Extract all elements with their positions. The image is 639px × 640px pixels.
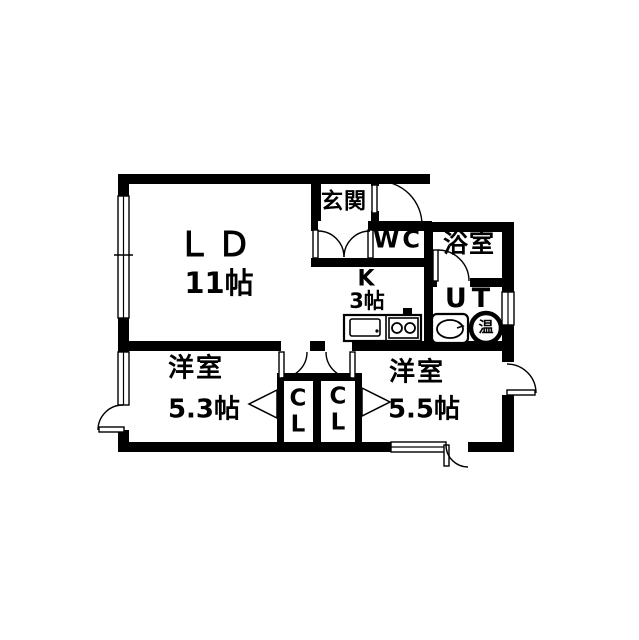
- room-label-genkan: 玄関: [321, 190, 367, 213]
- room-label-wc: WC: [373, 227, 423, 252]
- room-size-ld: 11帖: [184, 268, 253, 298]
- wall-right: [502, 222, 514, 452]
- wall-top: [118, 174, 430, 184]
- room-size-bedroom-left: 5.3帖: [168, 396, 240, 423]
- sink-icon: [350, 319, 380, 336]
- room-label-closet-left: C L: [290, 386, 307, 439]
- wall-closet-left: [277, 373, 284, 442]
- wall-mid-left: [118, 341, 281, 351]
- room-label-kitchen: K: [357, 267, 374, 290]
- room-label-bedroom-left: 洋室: [168, 355, 224, 382]
- room-size-kitchen: 3帖: [349, 290, 385, 312]
- floorplan-drawing: [0, 0, 639, 640]
- entrance-door: [372, 181, 422, 225]
- opening-bedroom1-ext-door: [118, 405, 129, 430]
- closet-left-folding-door-icon: [249, 390, 277, 418]
- utility-window: [502, 292, 514, 325]
- opening-genkan-doorway: [318, 221, 368, 231]
- room-label-ld: ＬＤ: [177, 228, 257, 264]
- water-heater-label: 温: [478, 320, 493, 336]
- room-label-closet-right: C L: [330, 384, 347, 437]
- washing-machine-icon: [432, 314, 468, 343]
- wall-mid-stub: [310, 341, 325, 351]
- ld-window: [114, 196, 133, 318]
- bedroom2-window: [391, 442, 446, 452]
- wall-closet-center: [313, 373, 321, 442]
- closet-right-folding-door-icon: [362, 388, 390, 416]
- room-label-bathroom: 浴室: [443, 231, 495, 257]
- room-label-bedroom-right: 洋室: [389, 359, 445, 386]
- faucet-icon: [403, 308, 412, 316]
- room-label-utility: UT: [445, 285, 495, 313]
- room-size-bedroom-right: 5.5帖: [388, 396, 460, 423]
- wall-entry-stub-top: [371, 174, 379, 186]
- genkan-double-door: [313, 230, 373, 258]
- wall-closet-right: [355, 373, 362, 442]
- bedroom1-window: [118, 352, 129, 405]
- floorplan-page: ＬＤ 11帖 玄関 WC 浴室 UT K 3帖 洋室 5.3帖 洋室 5.5帖 …: [0, 0, 639, 640]
